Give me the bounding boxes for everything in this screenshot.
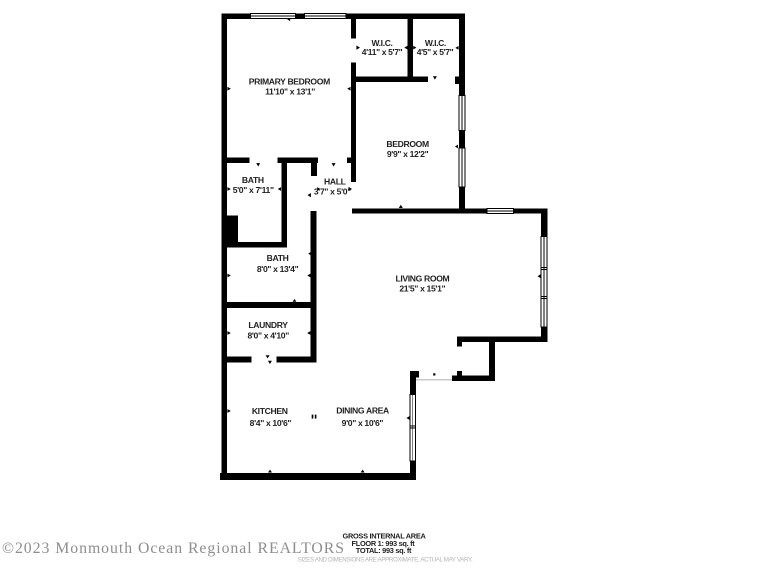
svg-text:HALL: HALL	[324, 176, 346, 186]
svg-text:©2023 Monmouth Ocean Regional: ©2023 Monmouth Ocean Regional REALTORS	[2, 540, 345, 557]
svg-text:LIVING ROOM: LIVING ROOM	[395, 274, 449, 284]
svg-text:LAUNDRY: LAUNDRY	[248, 320, 288, 330]
svg-text:8'0" x 13'4": 8'0" x 13'4"	[257, 264, 299, 274]
svg-text:KITCHEN: KITCHEN	[252, 406, 288, 416]
svg-text:BATH: BATH	[267, 253, 289, 263]
svg-text:3'7" x 5'0": 3'7" x 5'0"	[314, 187, 351, 197]
svg-text:11'10" x 13'1": 11'10" x 13'1"	[265, 86, 315, 96]
svg-text:TOTAL: 993 sq. ft: TOTAL: 993 sq. ft	[356, 546, 412, 555]
svg-text:4'11" x 5'7": 4'11" x 5'7"	[362, 47, 403, 57]
svg-text:PRIMARY BEDROOM: PRIMARY BEDROOM	[249, 76, 330, 86]
svg-text:8'4" x 10'6": 8'4" x 10'6"	[250, 418, 292, 428]
svg-text:BATH: BATH	[242, 175, 264, 185]
svg-text:4'5" x 5'7": 4'5" x 5'7"	[417, 47, 454, 57]
svg-text:DINING AREA: DINING AREA	[336, 405, 389, 415]
svg-text:9'0" x 10'6": 9'0" x 10'6"	[342, 418, 384, 428]
svg-text:SIZES AND DIMENSIONS ARE APPRO: SIZES AND DIMENSIONS ARE APPROXIMATE, AC…	[298, 557, 473, 564]
svg-text:8'0" x 4'10": 8'0" x 4'10"	[247, 330, 289, 340]
svg-text:BEDROOM: BEDROOM	[386, 139, 429, 149]
svg-text:21'5" x 15'1": 21'5" x 15'1"	[399, 284, 445, 294]
svg-text:5'0" x 7'11": 5'0" x 7'11"	[233, 185, 274, 195]
svg-text:9'9" x 12'2": 9'9" x 12'2"	[387, 149, 429, 159]
